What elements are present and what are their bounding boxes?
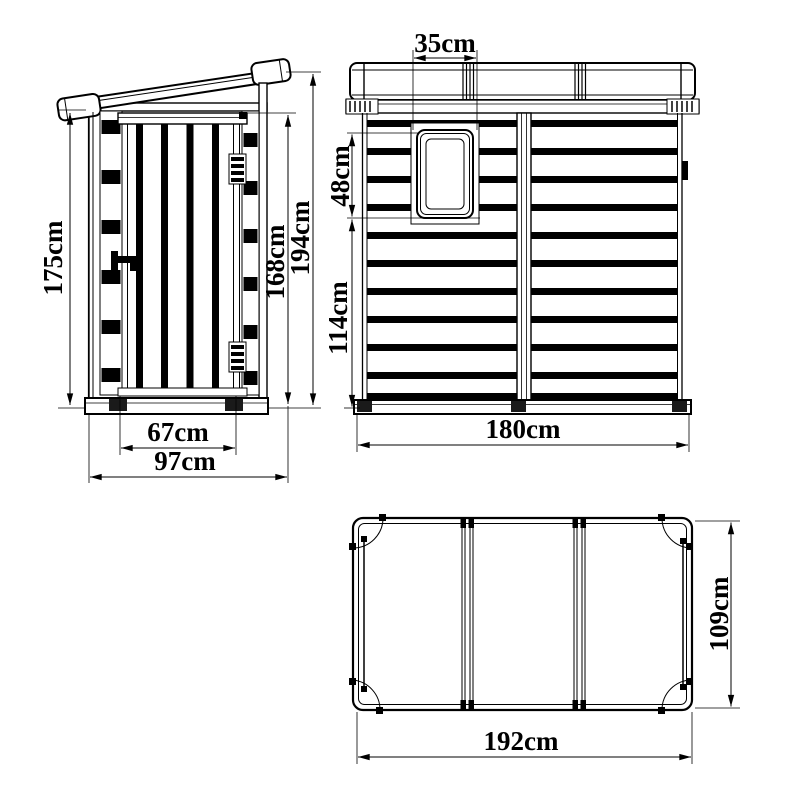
dim-label-below-window: 114cm bbox=[323, 281, 353, 355]
side-base bbox=[85, 398, 268, 414]
roof-left-cap bbox=[57, 93, 102, 121]
top-outline bbox=[353, 518, 692, 710]
front-base bbox=[354, 400, 691, 414]
front-view: 35cm 48cm 114cm 180cm bbox=[323, 28, 699, 452]
dim-label-door-width: 67cm bbox=[147, 417, 209, 447]
front-latch bbox=[682, 161, 688, 180]
front-eave bbox=[346, 99, 699, 114]
door-hinge-top bbox=[229, 154, 246, 184]
dim-label-top-depth: 109cm bbox=[704, 576, 734, 651]
dim-label-window-width: 35cm bbox=[414, 28, 476, 58]
dim-label-front-width: 180cm bbox=[486, 414, 561, 444]
side-dimensions: 175cm 168cm 194cm 67cm 97cm bbox=[38, 72, 321, 483]
door-plank bbox=[161, 124, 168, 388]
dim-label-side-height-high: 194cm bbox=[285, 200, 315, 275]
front-center-post bbox=[517, 113, 531, 400]
shed-dimension-drawing: 175cm 168cm 194cm 67cm 97cm bbox=[0, 0, 800, 800]
drawing-canvas: 175cm 168cm 194cm 67cm 97cm bbox=[0, 0, 800, 800]
door-plank bbox=[212, 124, 219, 388]
roof-right-cap bbox=[251, 58, 292, 85]
window bbox=[411, 123, 479, 224]
dim-label-top-width: 192cm bbox=[484, 726, 559, 756]
eave-left-bracket bbox=[346, 99, 378, 114]
dim-label-window-height: 48cm bbox=[325, 145, 355, 207]
door-handle bbox=[111, 251, 140, 274]
side-view: 175cm 168cm 194cm 67cm 97cm bbox=[38, 58, 321, 483]
door-plank bbox=[187, 124, 194, 388]
eave-right-bracket bbox=[667, 99, 699, 114]
dim-label-side-depth: 97cm bbox=[154, 446, 216, 476]
front-fascia bbox=[350, 63, 695, 100]
door bbox=[111, 112, 247, 396]
dim-label-side-height-low: 175cm bbox=[38, 220, 68, 295]
top-view: 192cm 109cm bbox=[349, 514, 740, 764]
door-hinge-bottom bbox=[229, 342, 246, 372]
